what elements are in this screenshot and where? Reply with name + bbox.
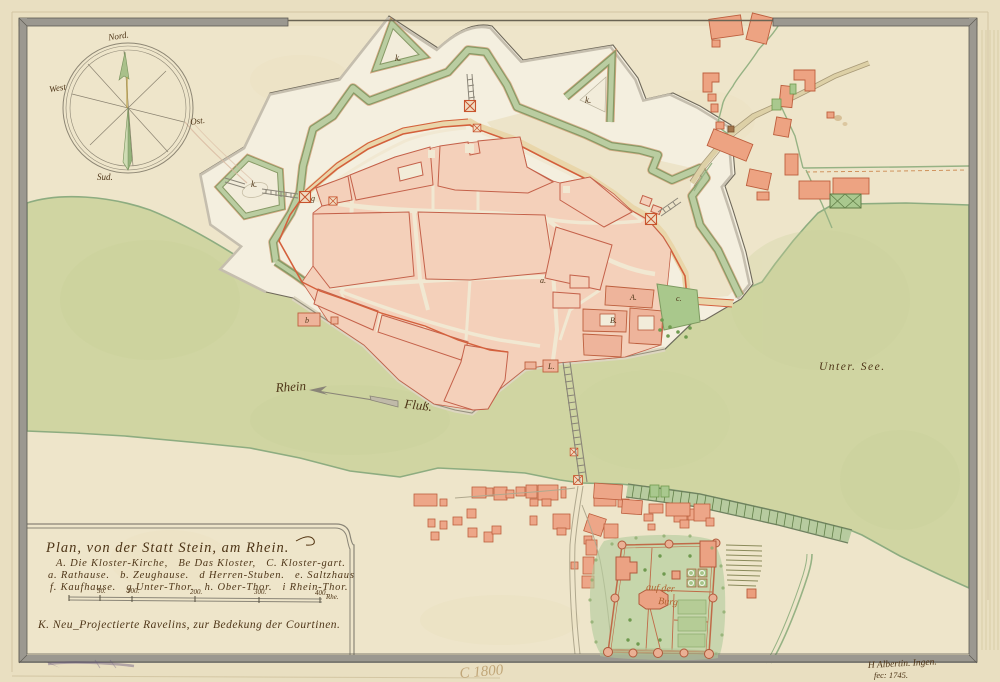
svg-text:300.: 300.	[253, 588, 267, 596]
svg-text:Rhe.: Rhe.	[325, 593, 339, 601]
svg-text:A. Die Kloster-Kirche, Be Da: A. Die Kloster-Kirche, Be Das Kloster, C…	[55, 558, 346, 569]
svg-text:a.: a.	[540, 276, 546, 285]
svg-text:B.: B.	[610, 316, 617, 325]
svg-text:Sud.: Sud.	[97, 172, 113, 182]
svg-text:Plan, von der Statt Stein, am: Plan, von der Statt Stein, am Rhein.	[45, 540, 289, 556]
svg-text:50.: 50.	[97, 587, 106, 595]
svg-text:100.: 100.	[127, 587, 140, 595]
svg-text:fec: 1745.: fec: 1745.	[874, 670, 908, 680]
svg-text:k.: k.	[251, 179, 257, 189]
svg-text:a. Rathause. b. Zeughause.: a. Rathause. b. Zeughause. d Herren-Stub…	[48, 570, 355, 581]
svg-text:K. Neu_Projectierte Ravelins,: K. Neu_Projectierte Ravelins, zur Bedeku…	[37, 619, 340, 631]
svg-text:b: b	[305, 316, 309, 325]
svg-text:g: g	[311, 194, 315, 203]
svg-text:auf der: auf der	[646, 582, 675, 595]
svg-text:L.: L.	[547, 362, 554, 371]
svg-text:Burg: Burg	[658, 596, 678, 608]
svg-text:k.: k.	[395, 53, 401, 63]
svg-text:A.: A.	[629, 293, 637, 302]
svg-text:200.: 200.	[190, 588, 203, 596]
svg-text:k.: k.	[585, 95, 591, 105]
svg-text:c.: c.	[676, 294, 682, 303]
svg-text:Ost.: Ost.	[189, 115, 205, 127]
svg-text:Unter. See.: Unter. See.	[819, 361, 886, 373]
svg-text:Rhein: Rhein	[274, 378, 306, 395]
